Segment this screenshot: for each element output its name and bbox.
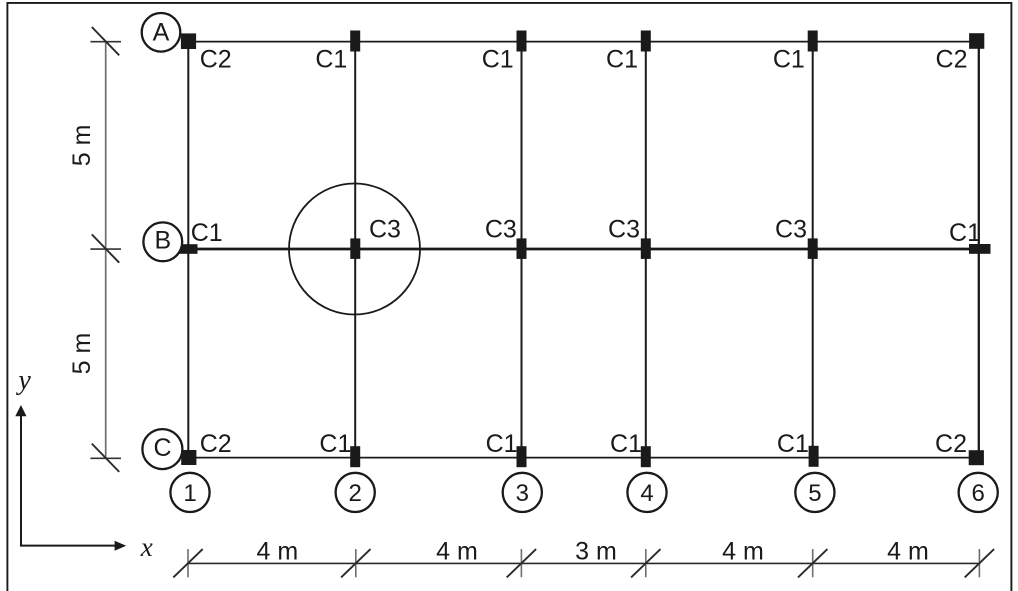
svg-text:C2: C2	[935, 430, 967, 458]
svg-text:C2: C2	[200, 46, 232, 74]
svg-text:C3: C3	[775, 216, 807, 244]
svg-text:C1: C1	[773, 46, 805, 74]
svg-text:4: 4	[640, 480, 653, 507]
svg-text:C3: C3	[369, 216, 401, 244]
svg-text:5 m: 5 m	[68, 125, 96, 167]
svg-text:C2: C2	[936, 46, 968, 74]
svg-text:6: 6	[972, 480, 985, 507]
svg-text:3 m: 3 m	[575, 538, 617, 566]
svg-text:3: 3	[516, 480, 529, 507]
svg-text:C1: C1	[319, 430, 351, 458]
svg-text:C3: C3	[485, 216, 517, 244]
svg-text:C1: C1	[315, 46, 347, 74]
svg-text:1: 1	[183, 480, 196, 507]
svg-text:C1: C1	[949, 219, 981, 247]
svg-text:C3: C3	[608, 216, 640, 244]
svg-text:4 m: 4 m	[436, 538, 478, 566]
svg-text:x: x	[140, 532, 153, 562]
svg-text:4 m: 4 m	[722, 538, 764, 566]
svg-text:5: 5	[808, 480, 821, 507]
svg-text:C: C	[153, 434, 171, 462]
svg-text:4 m: 4 m	[887, 538, 929, 566]
svg-text:C2: C2	[200, 430, 232, 458]
svg-text:C1: C1	[482, 46, 514, 74]
svg-text:2: 2	[349, 480, 362, 507]
svg-text:C1: C1	[610, 430, 642, 458]
svg-text:C1: C1	[606, 46, 638, 74]
svg-text:C1: C1	[777, 430, 809, 458]
svg-text:C1: C1	[486, 430, 518, 458]
svg-text:y: y	[15, 365, 31, 396]
svg-text:4 m: 4 m	[257, 538, 299, 566]
svg-text:C1: C1	[191, 219, 223, 247]
svg-text:A: A	[153, 19, 170, 47]
svg-text:B: B	[154, 227, 171, 255]
svg-text:5 m: 5 m	[68, 333, 96, 375]
